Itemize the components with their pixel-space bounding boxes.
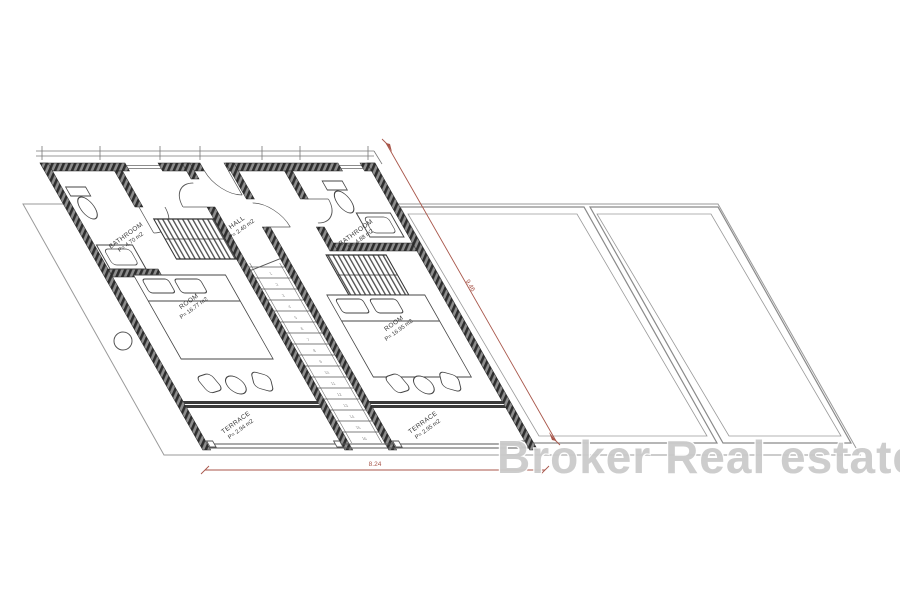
parapet [36, 146, 382, 164]
floor-plan-page: 12345678910111213141516 BATHROOM [0, 0, 900, 600]
parapet-ticks [42, 146, 368, 160]
dimension-bottom-value: 8.24 [369, 461, 382, 468]
floor-plan-drawing: 12345678910111213141516 BATHROOM [0, 0, 900, 600]
column [114, 332, 132, 350]
watermark-text: Broker Real estate [497, 431, 900, 483]
